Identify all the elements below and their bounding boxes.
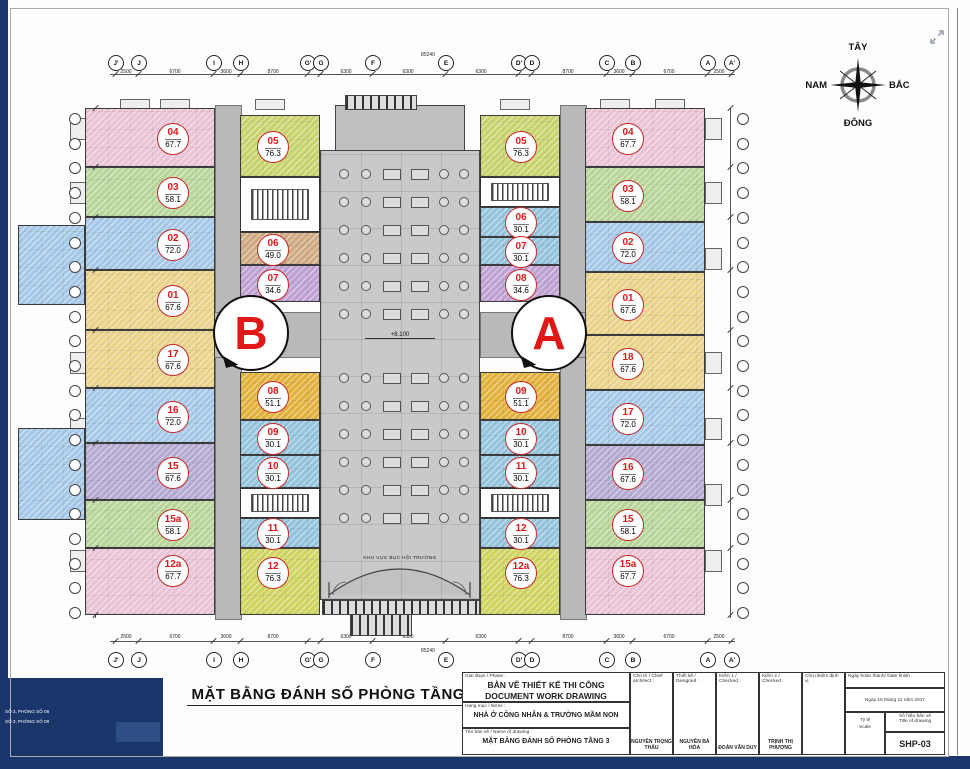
- round-table-icon: [361, 169, 371, 179]
- unit-number: 08: [267, 387, 278, 397]
- grid-bubble-top-C: C: [599, 55, 615, 71]
- rect-table-icon: [383, 281, 401, 292]
- round-table-icon: [361, 225, 371, 235]
- tb-signature-cell-2: Kiểm 1 / Checked :ĐOÀN VĂN DUY: [716, 672, 759, 755]
- unit-badge-a-07: 0730.1: [505, 236, 537, 268]
- grid-bubble-row: [69, 138, 81, 150]
- unit-number: 05: [267, 137, 278, 147]
- unit-badge-a-15a: 15a67.7: [612, 555, 644, 587]
- unit-badge-a-03: 0358.1: [612, 180, 644, 212]
- unit-number: 09: [267, 428, 278, 438]
- unit-number: 15: [167, 462, 178, 472]
- block-a-marker: A: [511, 295, 587, 371]
- grid-bubble-row: [737, 187, 749, 199]
- block-b-marker: B: [213, 295, 289, 371]
- unit-area: 72.0: [620, 419, 636, 429]
- unit-badge-b-10: 1030.1: [257, 457, 289, 489]
- unit-area: 58.1: [620, 526, 636, 536]
- grid-bubble-top-F: F: [365, 55, 381, 71]
- round-table-icon: [361, 485, 371, 495]
- unit-number: 02: [622, 238, 633, 248]
- tb-number-label-cell: Số hiệu bản vẽ Title of drawing: [885, 712, 945, 732]
- hall-exit-stair: [350, 614, 412, 636]
- grid-bubble-row: [737, 508, 749, 520]
- dim-line-right: [730, 108, 731, 618]
- round-table-icon: [439, 309, 449, 319]
- balcony: [705, 550, 722, 572]
- unit-area: 30.1: [265, 535, 281, 545]
- round-table-icon: [361, 253, 371, 263]
- grid-bubble-row: [69, 162, 81, 174]
- unit-badge-a-18: 1867.6: [612, 348, 644, 380]
- round-table-icon: [459, 401, 469, 411]
- dim-segment-label: 8700: [558, 634, 578, 640]
- rect-table-icon: [411, 401, 429, 412]
- rect-table-icon: [411, 457, 429, 468]
- balcony: [705, 182, 722, 204]
- compass-label-top: TÂY: [849, 41, 869, 53]
- unit-number: 01: [622, 294, 633, 304]
- round-table-icon: [459, 309, 469, 319]
- unit-badge-b-12a: 12a67.7: [157, 555, 189, 587]
- rect-table-icon: [383, 169, 401, 180]
- round-table-icon: [339, 485, 349, 495]
- round-table-icon: [459, 169, 469, 179]
- dim-segment-label: 6700: [165, 69, 185, 75]
- unit-area: 30.1: [265, 473, 281, 483]
- round-table-icon: [459, 513, 469, 523]
- unit-area: 51.1: [265, 398, 281, 408]
- tb-signature-role: Chủ trì / Chief architect :: [631, 673, 672, 685]
- unit-number: 09: [515, 387, 526, 397]
- unit-badge-a-15: 1558.1: [612, 509, 644, 541]
- stairs-icon: [251, 189, 309, 220]
- tb-signature-name: NGUYỄN TRỌNG THẤU: [631, 739, 672, 751]
- round-table-icon: [339, 457, 349, 467]
- hall-top-steps: [345, 95, 417, 110]
- unit-area: 67.6: [165, 473, 181, 483]
- unit-badge-b-12: 1276.3: [257, 557, 289, 589]
- rect-table-icon: [411, 197, 429, 208]
- grid-bubble-row: [69, 113, 81, 125]
- round-table-icon: [459, 225, 469, 235]
- unit-badge-a-17: 1772.0: [612, 403, 644, 435]
- hall-stage-arc: [321, 537, 478, 599]
- round-table-icon: [339, 373, 349, 383]
- unit-badge-a-11: 1130.1: [505, 457, 537, 489]
- grid-bubble-row: [737, 360, 749, 372]
- unit-area: 30.1: [265, 439, 281, 449]
- unit-badge-a-12a: 12a76.3: [505, 557, 537, 589]
- unit-area: 34.6: [265, 285, 281, 295]
- unit-badge-b-08: 0851.1: [257, 381, 289, 413]
- unit-a-15: [585, 500, 705, 548]
- tb-signature-cell-0: Chủ trì / Chief architect :NGUYỄN TRỌNG …: [630, 672, 673, 755]
- rect-table-icon: [383, 429, 401, 440]
- round-table-icon: [439, 485, 449, 495]
- round-table-icon: [361, 513, 371, 523]
- unit-badge-a-02: 0272.0: [612, 232, 644, 264]
- unit-badge-b-15: 1567.6: [157, 457, 189, 489]
- grid-bubble-bottom-A': A': [724, 652, 740, 668]
- grid-bubble-bottom-H: H: [233, 652, 249, 668]
- grid-bubble-row: [737, 533, 749, 545]
- unit-area: 67.6: [165, 361, 181, 371]
- grid-bubble-row: [69, 558, 81, 570]
- rect-table-icon: [411, 253, 429, 264]
- unit-a-04: [585, 108, 705, 167]
- unit-number: 03: [622, 185, 633, 195]
- unit-badge-a-09: 0951.1: [505, 381, 537, 413]
- dim-segment-label: 3600: [216, 634, 236, 640]
- grid-bubble-bottom-B: B: [625, 652, 641, 668]
- rect-table-icon: [411, 429, 429, 440]
- unit-a-03: [585, 167, 705, 222]
- round-table-icon: [339, 225, 349, 235]
- grid-bubble-top-A': A': [724, 55, 740, 71]
- unit-badge-b-01: 0167.6: [157, 285, 189, 317]
- stair-core-3: [480, 488, 560, 518]
- round-table-icon: [361, 281, 371, 291]
- unit-number: 16: [167, 406, 178, 416]
- unit-area: 76.3: [265, 148, 281, 158]
- round-table-icon: [439, 373, 449, 383]
- rect-table-icon: [383, 485, 401, 496]
- round-table-icon: [439, 253, 449, 263]
- stair-core-0: [240, 177, 320, 232]
- grid-bubble-top-D: D: [524, 55, 540, 71]
- round-table-icon: [361, 309, 371, 319]
- dim-segment-label: 6300: [398, 69, 418, 75]
- grid-bubble-row: [737, 162, 749, 174]
- tb-phase-line2: DOCUMENT WORK DRAWING: [463, 691, 629, 702]
- grid-bubble-row: [69, 459, 81, 471]
- grid-bubble-row: [69, 335, 81, 347]
- unit-area: 67.6: [620, 364, 636, 374]
- tb-signature-name: TRỊNH THỊ PHƯỢNG: [760, 739, 801, 751]
- unit-area: 30.1: [513, 253, 529, 263]
- dim-segment-label: 8700: [558, 69, 578, 75]
- unit-b-04: [85, 108, 215, 167]
- balcony: [705, 484, 722, 506]
- rect-table-icon: [383, 513, 401, 524]
- unit-number: 02: [167, 234, 178, 244]
- round-table-icon: [459, 429, 469, 439]
- unit-number: 17: [622, 408, 633, 418]
- tb-name-label: Tên bản vẽ / Name of drawing :: [463, 729, 629, 736]
- rect-table-icon: [383, 401, 401, 412]
- tb-scale-cell: Tỷ lệ Scale: [845, 712, 885, 755]
- tb-phase-line1: BẢN VẼ THIẾT KẾ THI CÔNG: [463, 680, 629, 691]
- tb-signature-cell-4: Chủ nhiệm định vị: [802, 672, 845, 755]
- unit-area: 34.6: [513, 285, 529, 295]
- stairs-icon: [491, 494, 549, 511]
- unit-badge-b-04: 0467.7: [157, 123, 189, 155]
- unit-b-12a: [85, 548, 215, 615]
- stair-core-1: [240, 488, 320, 518]
- round-table-icon: [339, 309, 349, 319]
- unit-badge-b-03: 0358.1: [157, 177, 189, 209]
- balcony: [705, 248, 722, 270]
- expand-icon[interactable]: [928, 28, 946, 46]
- unit-number: 12a: [513, 562, 530, 572]
- tb-scale-label2: Scale: [846, 724, 884, 731]
- elevation-label: +8.100: [365, 332, 435, 339]
- grid-bubble-row: [737, 459, 749, 471]
- round-table-icon: [339, 429, 349, 439]
- round-table-icon: [439, 513, 449, 523]
- unit-area: 76.3: [513, 148, 529, 158]
- grid-bubble-row: [69, 286, 81, 298]
- grid-bubble-top-B: B: [625, 55, 641, 71]
- rect-table-icon: [411, 225, 429, 236]
- unit-badge-b-11: 1130.1: [257, 518, 289, 550]
- round-table-icon: [339, 401, 349, 411]
- unit-number: 10: [267, 462, 278, 472]
- unit-number: 04: [167, 128, 178, 138]
- grid-bubble-bottom-D: D: [524, 652, 540, 668]
- compass-label-right: BẮC: [889, 80, 910, 91]
- dim-segment-label: 6300: [471, 69, 491, 75]
- unit-badge-b-05: 0576.3: [257, 131, 289, 163]
- grid-bubble-row: [69, 311, 81, 323]
- dim-segment-label: 8700: [263, 69, 283, 75]
- grid-bubble-top-J: J: [131, 55, 147, 71]
- unit-badge-b-17: 1767.6: [157, 344, 189, 376]
- round-table-icon: [339, 281, 349, 291]
- tb-date-value-cell: Ngày 16 tháng 11 năm 2017: [845, 688, 945, 712]
- dim-segment-label: 6300: [471, 634, 491, 640]
- rect-table-icon: [411, 281, 429, 292]
- unit-badge-b-15a: 15a58.1: [157, 509, 189, 541]
- round-table-icon: [439, 197, 449, 207]
- unit-area: 67.6: [165, 302, 181, 312]
- round-table-icon: [339, 197, 349, 207]
- dim-segment-label: 8700: [263, 634, 283, 640]
- grid-bubble-top-G: G: [313, 55, 329, 71]
- tb-signature-role: Thiết kế / Designed :: [674, 673, 715, 685]
- grid-bubble-row: [737, 138, 749, 150]
- unit-number: 05: [515, 137, 526, 147]
- dim-segment-label: 6300: [336, 69, 356, 75]
- grid-bubble-row: [69, 434, 81, 446]
- unit-badge-a-04: 0467.7: [612, 123, 644, 155]
- round-table-icon: [459, 485, 469, 495]
- tb-name-value: MẶT BẰNG ĐÁNH SỐ PHÒNG TẦNG 3: [463, 738, 629, 745]
- unit-area: 72.0: [620, 249, 636, 259]
- grid-bubble-row: [69, 533, 81, 545]
- hall-area: [320, 150, 480, 600]
- round-table-icon: [361, 401, 371, 411]
- dim-segment-label: 3600: [609, 634, 629, 640]
- unit-b-03: [85, 167, 215, 217]
- corner-note-line-2: SỐ 3, PHÒNG SỐ 09: [5, 719, 49, 724]
- tb-name-cell: Tên bản vẽ / Name of drawing : MẶT BẰNG …: [462, 728, 630, 755]
- unit-badge-a-01: 0167.6: [612, 289, 644, 321]
- grid-bubble-row: [737, 484, 749, 496]
- tb-signature-name: NGUYỄN BÁ HÒA: [674, 739, 715, 751]
- dim-line-top: [110, 74, 735, 75]
- grid-bubble-row: [69, 187, 81, 199]
- tb-signature-role: Kiểm 2 / Checked :: [760, 673, 801, 685]
- grid-bubble-row: [69, 212, 81, 224]
- unit-number: 08: [515, 274, 526, 284]
- railing: [255, 99, 285, 110]
- unit-number: 15a: [165, 515, 182, 525]
- dim-segment-label: 6700: [659, 69, 679, 75]
- round-table-icon: [361, 197, 371, 207]
- unit-area: 67.6: [620, 305, 636, 315]
- round-table-icon: [439, 429, 449, 439]
- tb-date-value: Ngày 16 tháng 11 năm 2017: [863, 697, 927, 704]
- unit-a-16: [585, 445, 705, 500]
- tb-signature-cell-3: Kiểm 2 / Checked :TRỊNH THỊ PHƯỢNG: [759, 672, 802, 755]
- compass-label-left: NAM: [806, 80, 827, 91]
- stairs-icon: [491, 183, 549, 200]
- grid-bubble-row: [737, 113, 749, 125]
- unit-a-17: [585, 390, 705, 445]
- railing: [500, 99, 530, 110]
- dim-segment-label: 2500: [709, 634, 729, 640]
- unit-a-01: [585, 272, 705, 335]
- unit-b-16: [85, 388, 215, 443]
- unit-badge-a-12: 1230.1: [505, 518, 537, 550]
- unit-a-15a: [585, 548, 705, 615]
- unit-area: 58.1: [165, 526, 181, 536]
- round-table-icon: [439, 169, 449, 179]
- unit-area: 30.1: [513, 473, 529, 483]
- grid-bubble-bottom-E: E: [438, 652, 454, 668]
- grid-bubble-row: [69, 607, 81, 619]
- rect-table-icon: [411, 485, 429, 496]
- grid-bubble-row: [69, 385, 81, 397]
- round-table-icon: [361, 457, 371, 467]
- tb-items-label: Hạng mục / Items :: [463, 703, 629, 710]
- grid-bubble-row: [69, 360, 81, 372]
- round-table-icon: [459, 253, 469, 263]
- unit-number: 01: [167, 291, 178, 301]
- tb-date-cell: Ngày hoàn thành/ Date finish :: [845, 672, 945, 688]
- grid-bubble-row: [737, 607, 749, 619]
- unit-badge-a-10: 1030.1: [505, 423, 537, 455]
- unit-badge-b-16: 1672.0: [157, 401, 189, 433]
- unit-a-18: [585, 335, 705, 390]
- rect-table-icon: [411, 169, 429, 180]
- unit-badge-b-02: 0272.0: [157, 229, 189, 261]
- unit-b-17: [85, 330, 215, 388]
- unit-number: 16: [622, 463, 633, 473]
- round-table-icon: [361, 373, 371, 383]
- unit-b-15a: [85, 500, 215, 548]
- grid-bubble-bottom-F: F: [365, 652, 381, 668]
- grid-bubble-row: [737, 385, 749, 397]
- unit-area: 76.3: [265, 573, 281, 583]
- tb-signature-role: Chủ nhiệm định vị: [803, 673, 844, 685]
- tb-items-value: NHÀ Ở CÔNG NHÂN & TRƯỜNG MẦM NON: [463, 712, 629, 719]
- round-table-icon: [459, 281, 469, 291]
- unit-area: 58.1: [620, 196, 636, 206]
- grid-bubble-row: [69, 484, 81, 496]
- unit-area: 30.1: [513, 224, 529, 234]
- tb-items-cell: Hạng mục / Items : NHÀ Ở CÔNG NHÂN & TRƯ…: [462, 702, 630, 728]
- drawing-title: MẶT BẰNG ĐÁNH SỐ PHÒNG TẦNG 3: [170, 686, 500, 703]
- grid-bubble-row: [737, 237, 749, 249]
- unit-badge-b-09: 0930.1: [257, 423, 289, 455]
- unit-badge-a-16: 1667.6: [612, 458, 644, 490]
- unit-number: 12: [267, 562, 278, 572]
- grid-bubble-row: [737, 409, 749, 421]
- unit-number: 06: [515, 213, 526, 223]
- grid-bubble-bottom-A: A: [700, 652, 716, 668]
- round-table-icon: [439, 401, 449, 411]
- grid-bubble-top-J': J': [108, 55, 124, 71]
- grid-bubble-bottom-J: J: [131, 652, 147, 668]
- balcony: [705, 418, 722, 440]
- stairs-icon: [251, 494, 309, 511]
- dim-segment-label: 6700: [165, 634, 185, 640]
- rect-table-icon: [383, 225, 401, 236]
- unit-area: 49.0: [265, 250, 281, 260]
- tb-signature-name: ĐOÀN VĂN DUY: [717, 745, 758, 751]
- dim-segment-label: 2500: [116, 634, 136, 640]
- unit-area: 72.0: [165, 417, 181, 427]
- grid-bubble-row: [69, 237, 81, 249]
- unit-number: 07: [267, 274, 278, 284]
- unit-badge-a-06: 0630.1: [505, 207, 537, 239]
- round-table-icon: [439, 225, 449, 235]
- tb-number-value-cell: SHP-03: [885, 732, 945, 755]
- unit-number: 11: [268, 524, 279, 534]
- balcony: [705, 352, 722, 374]
- round-table-icon: [459, 457, 469, 467]
- grid-bubble-row: [737, 212, 749, 224]
- unit-area: 58.1: [165, 194, 181, 204]
- unit-area: 67.6: [620, 474, 636, 484]
- unit-area: 76.3: [513, 573, 529, 583]
- unit-badge-b-06: 0649.0: [257, 234, 289, 266]
- round-table-icon: [339, 253, 349, 263]
- round-table-icon: [459, 373, 469, 383]
- unit-a-02: [585, 222, 705, 272]
- tb-signature-role: Kiểm 1 / Checked :: [717, 673, 758, 685]
- grid-bubble-bottom-J': J': [108, 652, 124, 668]
- grid-bubble-row: [737, 582, 749, 594]
- round-table-icon: [459, 197, 469, 207]
- unit-number: 15a: [620, 560, 637, 570]
- grid-bubble-top-A: A: [700, 55, 716, 71]
- rect-table-icon: [383, 197, 401, 208]
- unit-area: 67.7: [620, 571, 636, 581]
- tb-number-value: SHP-03: [899, 739, 931, 749]
- unit-b-15: [85, 443, 215, 500]
- grid-bubble-row: [737, 261, 749, 273]
- rect-table-icon: [383, 373, 401, 384]
- unit-area: 67.7: [165, 139, 181, 149]
- unit-b-01: [85, 270, 215, 330]
- grid-bubble-row: [737, 311, 749, 323]
- hall-stage-label: KHU VỰC BỤC HỘI TRƯỜNG: [336, 556, 464, 561]
- rect-table-icon: [383, 253, 401, 264]
- hall-entrance-structure: [335, 105, 465, 152]
- grid-bubble-row: [737, 558, 749, 570]
- grid-bubble-bottom-G: G: [313, 652, 329, 668]
- tb-date-label: Ngày hoàn thành/ Date finish :: [846, 673, 944, 680]
- unit-area: 67.7: [620, 139, 636, 149]
- unit-number: 04: [622, 128, 633, 138]
- grid-bubble-top-I: I: [206, 55, 222, 71]
- unit-b-02: [85, 217, 215, 270]
- compass-rose: TÂY ĐÔNG NAM BẮC: [806, 38, 910, 130]
